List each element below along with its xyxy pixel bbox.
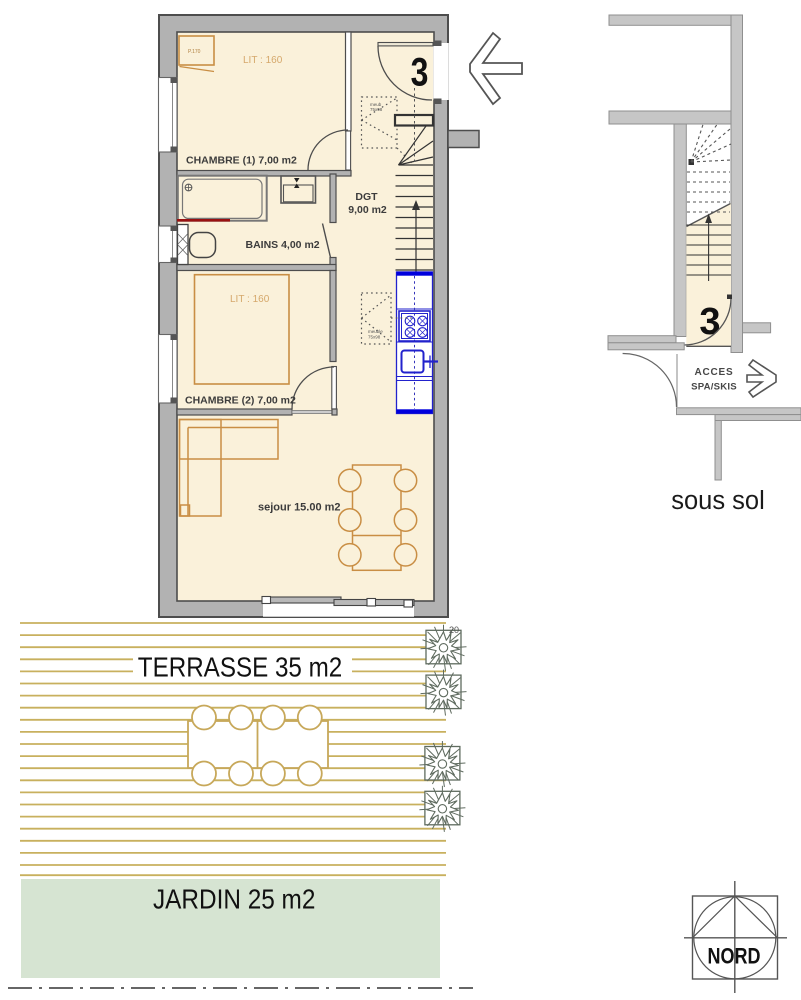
svg-text:9,00 m2: 9,00 m2	[348, 204, 387, 216]
svg-text:BAINS 4,00 m2: BAINS 4,00 m2	[246, 239, 320, 251]
svg-text:sous sol: sous sol	[671, 487, 765, 515]
svg-text:LIT : 160: LIT : 160	[243, 55, 283, 66]
svg-text:SPA/SKIS: SPA/SKIS	[691, 382, 737, 393]
svg-text:ACCES: ACCES	[694, 367, 733, 378]
svg-text:3: 3	[411, 49, 429, 94]
svg-text:75x98: 75x98	[370, 107, 383, 112]
svg-text:JARDIN 25 m2: JARDIN 25 m2	[153, 883, 315, 915]
svg-text:meuble: meuble	[368, 329, 383, 334]
svg-text:NORD: NORD	[708, 945, 761, 969]
svg-text:P.170: P.170	[188, 49, 201, 55]
svg-text:75x98: 75x98	[368, 335, 381, 340]
svg-text:sejour 15.00 m2: sejour 15.00 m2	[258, 502, 341, 514]
svg-text:CHAMBRE (2) 7,00 m2: CHAMBRE (2) 7,00 m2	[185, 395, 296, 407]
svg-text:20: 20	[449, 625, 459, 635]
svg-text:DGT: DGT	[355, 191, 378, 203]
svg-text:LIT : 160: LIT : 160	[230, 294, 270, 305]
svg-text:CHAMBRE (1) 7,00 m2: CHAMBRE (1) 7,00 m2	[186, 155, 297, 167]
svg-text:TERRASSE 35 m2: TERRASSE 35 m2	[138, 651, 342, 683]
